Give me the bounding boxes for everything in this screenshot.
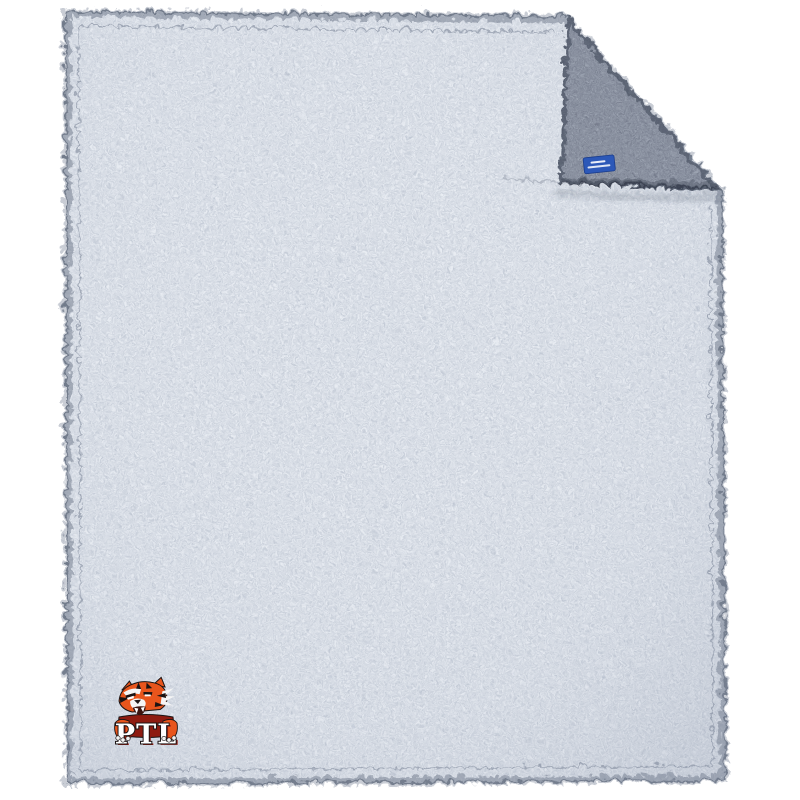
soft-shading	[62, 8, 724, 782]
product-photo: PTL PTL	[0, 0, 800, 800]
tag-body	[583, 155, 616, 174]
logo-text: PTL	[115, 720, 177, 751]
blanket-body	[0, 0, 800, 800]
blanket-image: PTL PTL	[0, 0, 800, 800]
woven-tag	[583, 155, 616, 174]
